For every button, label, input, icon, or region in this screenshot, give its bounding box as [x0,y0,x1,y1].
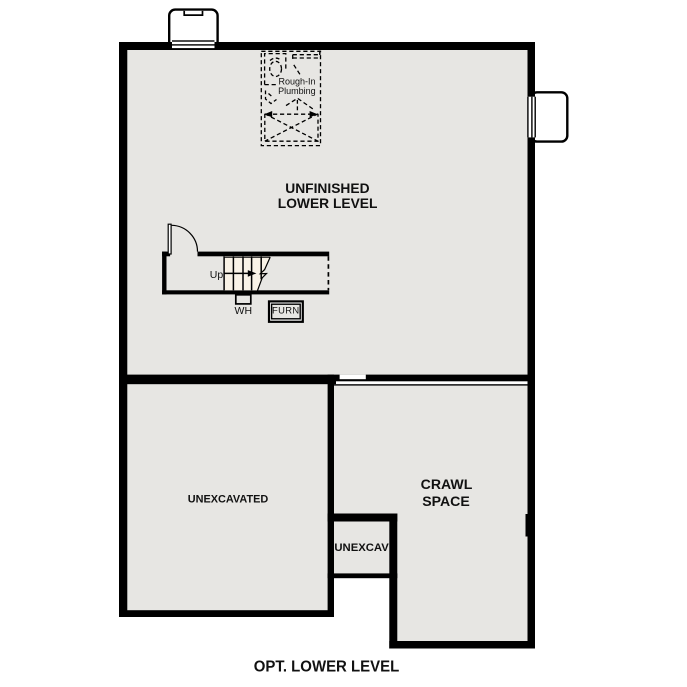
svg-text:Rough-In: Rough-In [278,76,315,86]
svg-text:FURN: FURN [272,305,300,316]
svg-text:LOWER LEVEL: LOWER LEVEL [278,196,378,211]
svg-text:Up: Up [210,269,224,281]
svg-text:UNEXCAVATED: UNEXCAVATED [188,493,269,505]
svg-text:UNFINISHED: UNFINISHED [285,181,369,196]
svg-text:OPT. LOWER LEVEL: OPT. LOWER LEVEL [254,658,400,675]
svg-text:Plumbing: Plumbing [278,86,316,96]
svg-text:CRAWL: CRAWL [421,476,473,492]
svg-text:SPACE: SPACE [422,493,470,509]
svg-text:WH: WH [235,305,253,317]
svg-text:UNEXCAV: UNEXCAV [334,542,389,554]
